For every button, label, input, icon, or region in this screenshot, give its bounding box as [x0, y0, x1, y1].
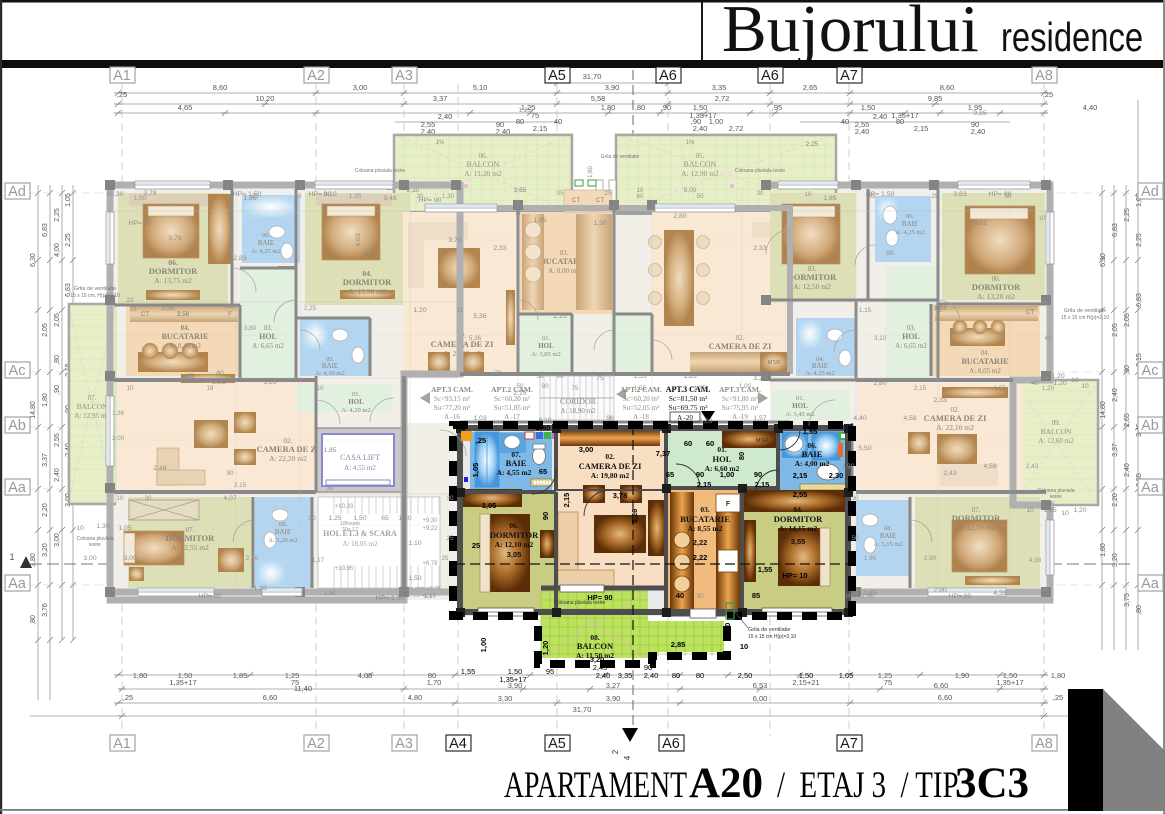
svg-text:06.: 06. [906, 213, 915, 220]
svg-text:70: 70 [494, 370, 502, 377]
svg-text:Sc=93,15 m²: Sc=93,15 m² [434, 395, 470, 403]
svg-text:BAIE: BAIE [322, 362, 338, 370]
svg-text:1,20: 1,20 [1073, 507, 1086, 514]
svg-text:3,63: 3,63 [933, 305, 946, 312]
svg-text:3,20: 3,20 [1112, 553, 1119, 567]
svg-text:4,80: 4,80 [408, 693, 423, 702]
svg-text:3,25: 3,25 [753, 375, 766, 382]
svg-text:50: 50 [696, 193, 704, 200]
svg-text:CT: CT [1026, 310, 1034, 316]
svg-text:1,90: 1,90 [955, 671, 970, 680]
svg-text:1,00: 1,00 [709, 117, 724, 126]
svg-text:DORMITOR: DORMITOR [149, 266, 198, 276]
svg-text:75: 75 [596, 375, 604, 382]
svg-text:1,00: 1,00 [479, 638, 488, 653]
svg-text:3,00: 3,00 [112, 435, 125, 442]
svg-text:80: 80 [696, 671, 704, 680]
svg-text:2,25: 2,25 [1124, 208, 1131, 222]
svg-text:4,40: 4,40 [853, 415, 866, 422]
svg-text:3,20: 3,20 [42, 543, 49, 557]
svg-text:1,57: 1,57 [753, 415, 766, 422]
svg-text:1%: 1% [436, 140, 445, 146]
svg-text:30: 30 [326, 485, 334, 492]
svg-text:1,85: 1,85 [324, 447, 337, 454]
svg-text:2,15: 2,15 [562, 493, 571, 508]
svg-text:08.: 08. [884, 525, 893, 532]
svg-text:2,60: 2,60 [536, 423, 551, 432]
svg-text:Su=52,05 m²: Su=52,05 m² [623, 404, 659, 412]
svg-text:22: 22 [126, 297, 134, 304]
svg-text:8,60: 8,60 [940, 83, 955, 92]
svg-text:A: 4,25 m2: A: 4,25 m2 [251, 248, 280, 255]
svg-text:Ac: Ac [9, 363, 26, 379]
svg-text:85: 85 [752, 591, 760, 600]
svg-text:6,00: 6,00 [753, 694, 768, 703]
svg-text:4,58: 4,58 [983, 463, 996, 470]
svg-text:1,50: 1,50 [408, 575, 421, 582]
svg-text:A -20: A -20 [677, 414, 693, 422]
svg-text:,90: ,90 [661, 103, 671, 112]
svg-text:4,07: 4,07 [223, 495, 236, 502]
svg-text:MSR: MSR [768, 360, 780, 366]
svg-text:10: 10 [740, 642, 748, 651]
svg-text:,25: ,25 [476, 436, 486, 445]
svg-text:1,00: 1,00 [720, 470, 735, 479]
svg-text:BALCON: BALCON [1041, 427, 1072, 436]
svg-text:Sc=91,80 m²: Sc=91,80 m² [722, 395, 758, 403]
svg-text:A6: A6 [659, 68, 677, 84]
svg-text:2,15: 2,15 [234, 482, 247, 489]
svg-text:+10,33: +10,33 [335, 504, 354, 510]
svg-text:/ ETAJ 3 / TIP: / ETAJ 3 / TIP [777, 765, 958, 806]
svg-text:03.: 03. [264, 324, 273, 332]
svg-text:2,33: 2,33 [493, 245, 506, 252]
svg-text:1,20: 1,20 [723, 623, 732, 638]
svg-text:HP= 90: HP= 90 [129, 220, 152, 227]
svg-text:A: 13,20 m2: A: 13,20 m2 [977, 292, 1015, 301]
svg-text:Grila de ventilatie: Grila de ventilatie [748, 627, 791, 633]
svg-text:18: 18 [206, 385, 214, 392]
svg-text:80: 80 [896, 117, 904, 126]
svg-text:1,10: 1,10 [408, 540, 421, 547]
svg-text:3,35: 3,35 [712, 83, 727, 92]
svg-text:1,50: 1,50 [861, 103, 876, 112]
svg-text:06.: 06. [262, 232, 271, 239]
svg-text:2,15: 2,15 [553, 313, 566, 320]
svg-text:APT.3 CAM.: APT.3 CAM. [431, 385, 473, 394]
svg-text:HOL: HOL [259, 332, 277, 341]
svg-text:25: 25 [441, 555, 449, 562]
svg-text:1,25: 1,25 [518, 107, 531, 114]
svg-text:40: 40 [841, 117, 849, 126]
svg-text:01.: 01. [542, 335, 551, 342]
svg-text:Su=75,95 m²: Su=75,95 m² [722, 404, 758, 412]
svg-text:A: 13,90 m2: A: 13,90 m2 [348, 287, 386, 296]
svg-text:50: 50 [851, 535, 859, 542]
svg-text:3,00: 3,00 [579, 445, 594, 454]
svg-text:Ac: Ac [1142, 363, 1159, 379]
svg-text:5,26: 5,26 [630, 509, 639, 524]
svg-text:1,35+17: 1,35+17 [996, 678, 1023, 687]
svg-text:1,30: 1,30 [442, 193, 455, 200]
svg-text:95: 95 [886, 250, 894, 257]
svg-text:1,30: 1,30 [96, 523, 109, 530]
svg-text:BALCON: BALCON [577, 641, 614, 651]
svg-text:25: 25 [294, 193, 302, 200]
svg-text:Grila de ventilatie: Grila de ventilatie [74, 286, 117, 292]
svg-text:75: 75 [884, 678, 892, 687]
svg-text:1,55: 1,55 [633, 373, 646, 380]
svg-text:30: 30 [696, 593, 704, 600]
svg-text:A6: A6 [662, 736, 680, 752]
svg-text:,80: ,80 [30, 615, 37, 625]
svg-text:03.: 03. [560, 249, 569, 257]
svg-text:60: 60 [684, 439, 692, 448]
svg-text:6,83: 6,83 [1136, 293, 1143, 307]
svg-text:3,05: 3,05 [507, 550, 522, 559]
svg-text:1,36: 1,36 [112, 410, 125, 417]
svg-text:1,05: 1,05 [65, 193, 72, 207]
svg-text:10: 10 [1061, 510, 1069, 517]
svg-text:1,70: 1,70 [427, 678, 442, 687]
svg-text:31,70: 31,70 [583, 72, 602, 81]
svg-text:A: 4,55 m2: A: 4,55 m2 [344, 464, 376, 472]
svg-text:80: 80 [516, 117, 524, 126]
svg-text:3,37: 3,37 [1112, 443, 1119, 457]
svg-text:07.: 07. [88, 394, 97, 402]
svg-text:A: 18,05 m2: A: 18,05 m2 [342, 540, 378, 548]
svg-text:HOL: HOL [792, 402, 808, 410]
svg-text:03.: 03. [700, 505, 710, 514]
svg-text:3,00: 3,00 [83, 555, 96, 562]
svg-text:05.: 05. [696, 152, 705, 160]
svg-text:1,55: 1,55 [758, 565, 773, 574]
svg-text:2,40: 2,40 [54, 468, 61, 482]
svg-text:80: 80 [672, 671, 680, 680]
svg-text:2,80: 2,80 [873, 380, 886, 387]
svg-text:2,05: 2,05 [1124, 313, 1131, 327]
svg-text:50: 50 [516, 383, 524, 390]
svg-text:2,72: 2,72 [729, 124, 744, 133]
svg-text:4,58: 4,58 [903, 415, 916, 422]
svg-text:3,35: 3,35 [618, 671, 633, 680]
svg-text:A: 5,15 m2: A: 5,15 m2 [873, 541, 902, 548]
svg-text:2,65: 2,65 [1124, 413, 1131, 427]
svg-text:A -18: A -18 [633, 413, 649, 421]
svg-text:A8: A8 [1035, 68, 1053, 84]
svg-text:3,00: 3,00 [54, 533, 61, 547]
svg-text:A: 8,40 m2: A: 8,40 m2 [169, 342, 201, 350]
svg-text:3,10: 3,10 [874, 335, 887, 342]
svg-text:1,05: 1,05 [471, 463, 480, 478]
svg-text:A: 12,95 m2: A: 12,95 m2 [74, 412, 110, 420]
svg-text:4: 4 [623, 755, 632, 760]
svg-text:Su=77,20 m²: Su=77,20 m² [434, 404, 470, 412]
svg-text:A: 18,90 m2: A: 18,90 m2 [560, 407, 596, 415]
svg-text:01.: 01. [352, 391, 361, 398]
svg-text:A8: A8 [1035, 736, 1053, 752]
svg-text:DORMITOR: DORMITOR [952, 513, 1001, 523]
svg-text:6,30: 6,30 [1100, 253, 1107, 267]
svg-text:65: 65 [381, 515, 389, 522]
svg-text:HOL: HOL [538, 342, 554, 350]
svg-text:30: 30 [308, 515, 316, 522]
svg-text:Grila de ventilatie: Grila de ventilatie [601, 154, 640, 160]
svg-text:A: 6,65 m2: A: 6,65 m2 [895, 342, 927, 350]
svg-text:2,15: 2,15 [513, 390, 526, 397]
svg-text:1,95: 1,95 [864, 555, 877, 562]
svg-text:A1: A1 [113, 736, 131, 752]
svg-text:DORMITOR: DORMITOR [166, 533, 215, 543]
svg-text:40: 40 [1031, 380, 1039, 387]
svg-text:04.: 04. [793, 505, 803, 514]
svg-text:10: 10 [126, 385, 134, 392]
svg-text:HOL: HOL [348, 398, 364, 406]
svg-text:2,85: 2,85 [671, 640, 686, 649]
svg-text:Aa: Aa [8, 576, 27, 592]
svg-text:APT.2 CAM.: APT.2 CAM. [491, 385, 533, 394]
svg-text:1,20: 1,20 [413, 307, 426, 314]
svg-text:Aa: Aa [8, 480, 27, 496]
svg-text:4,40: 4,40 [1083, 103, 1098, 112]
svg-text:,25: ,25 [1053, 693, 1063, 702]
svg-text:50: 50 [536, 373, 544, 380]
svg-text:residence: residence [1001, 13, 1143, 59]
svg-text:2: 2 [611, 749, 620, 754]
svg-text:11,40: 11,40 [294, 684, 312, 693]
svg-text:25: 25 [604, 190, 612, 197]
svg-text:30: 30 [416, 193, 424, 200]
svg-text:09.: 09. [1052, 419, 1061, 427]
svg-text:4,00: 4,00 [54, 243, 61, 257]
svg-text:HP= 10: HP= 10 [782, 571, 807, 580]
svg-text:1,55: 1,55 [994, 385, 1007, 392]
svg-text:3,76: 3,76 [42, 603, 49, 617]
svg-text:5,58: 5,58 [591, 94, 606, 103]
svg-text:A7: A7 [840, 68, 858, 84]
svg-text:8,60: 8,60 [213, 83, 228, 92]
svg-text:1,85: 1,85 [823, 195, 836, 202]
svg-text:Bujorului: Bujorului [722, 0, 979, 66]
svg-text:4,38: 4,38 [1029, 557, 1042, 564]
svg-text:75: 75 [571, 385, 579, 392]
svg-text:1,30: 1,30 [593, 220, 606, 227]
svg-text:15 x 15 cm, H(p)=2,10: 15 x 15 cm, H(p)=2,10 [70, 293, 120, 299]
svg-text:30: 30 [446, 495, 454, 502]
svg-text:A1: A1 [113, 68, 131, 84]
svg-text:03.: 03. [907, 324, 916, 332]
svg-text:90: 90 [556, 373, 564, 380]
svg-text:,80: ,80 [1136, 605, 1143, 615]
svg-text:5,36: 5,36 [473, 313, 486, 320]
svg-text:3,65: 3,65 [514, 187, 527, 194]
svg-text:2,60: 2,60 [503, 421, 518, 430]
svg-text:1,15: 1,15 [224, 303, 237, 310]
svg-text:CAMERA DE ZI: CAMERA DE ZI [924, 413, 988, 423]
svg-text:1,35+17: 1,35+17 [169, 678, 196, 687]
svg-text:1,35: 1,35 [349, 193, 362, 200]
svg-text:A: 12,60 m2: A: 12,60 m2 [1038, 437, 1074, 445]
svg-text:40: 40 [1044, 335, 1052, 342]
svg-text:Grila de ventilatie: Grila de ventilatie [1064, 308, 1107, 314]
svg-text:10,30: 10,30 [106, 191, 123, 198]
svg-text:90: 90 [696, 470, 704, 479]
svg-text:A -16: A -16 [444, 413, 460, 421]
svg-text:HOL: HOL [713, 454, 732, 464]
svg-text:80: 80 [737, 452, 746, 460]
svg-text:,90: ,90 [54, 385, 61, 395]
svg-text:Sc=60,20 m²: Sc=60,20 m² [623, 395, 659, 403]
svg-text:A: 3,85 m2: A: 3,85 m2 [531, 351, 560, 358]
svg-text:1,05: 1,05 [118, 525, 131, 532]
svg-text:BUCATARIE: BUCATARIE [162, 332, 209, 341]
svg-text:+9,22: +9,22 [422, 526, 438, 532]
svg-text:2,30: 2,30 [829, 471, 844, 480]
svg-text:MSR: MSR [756, 438, 768, 444]
svg-text:14,80: 14,80 [1100, 401, 1107, 419]
svg-text:1,00: 1,00 [739, 383, 752, 390]
svg-text:HP= 90: HP= 90 [199, 593, 222, 600]
svg-text:APARTAMENT: APARTAMENT [504, 765, 687, 806]
svg-text:A3: A3 [395, 68, 413, 84]
svg-text:4,03: 4,03 [363, 250, 376, 257]
svg-text:A: 22,10 m2: A: 22,10 m2 [936, 423, 974, 432]
svg-text:Coloana pluviala iesire: Coloana pluviala iesire [355, 168, 406, 174]
svg-text:1,05: 1,05 [482, 501, 497, 510]
svg-text:08.: 08. [279, 521, 288, 528]
svg-text:04.: 04. [181, 324, 190, 332]
svg-text:A: 12,55 m2: A: 12,55 m2 [171, 543, 209, 552]
svg-text:04.: 04. [981, 349, 990, 357]
svg-text:40: 40 [554, 117, 562, 126]
svg-text:6,60: 6,60 [263, 693, 278, 702]
svg-text:1,80: 1,80 [601, 103, 616, 112]
svg-text:95: 95 [546, 667, 554, 676]
svg-text:2,05: 2,05 [54, 313, 61, 327]
svg-text:90: 90 [541, 512, 550, 520]
svg-text:3,00: 3,00 [123, 555, 136, 562]
svg-text:Su=51,85 m²: Su=51,85 m² [494, 404, 530, 412]
svg-text:2,55: 2,55 [793, 490, 808, 499]
svg-text:3,30: 3,30 [498, 694, 513, 703]
svg-text:1,25: 1,25 [328, 515, 341, 522]
svg-text:7,37: 7,37 [656, 449, 671, 458]
svg-text:3,48: 3,48 [383, 195, 396, 202]
svg-text:iesire: iesire [1050, 494, 1062, 500]
svg-text:HP= 1,50: HP= 1,50 [376, 595, 405, 602]
svg-text:2,15: 2,15 [914, 385, 927, 392]
svg-text:3,27: 3,27 [606, 681, 621, 690]
svg-text:05: 05 [556, 190, 564, 197]
svg-text:3,37: 3,37 [42, 453, 49, 467]
svg-text:22: 22 [129, 306, 137, 313]
svg-text:A2: A2 [307, 736, 325, 752]
svg-text:1,50: 1,50 [134, 195, 147, 202]
svg-text:2,22: 2,22 [693, 538, 708, 547]
svg-text:2,40: 2,40 [1112, 388, 1119, 402]
svg-text:1,80: 1,80 [42, 393, 49, 407]
svg-text:2,20: 2,20 [42, 503, 49, 517]
svg-text:4,65: 4,65 [178, 103, 193, 112]
svg-text:2,40: 2,40 [1124, 463, 1131, 477]
svg-text:1,50: 1,50 [353, 515, 366, 522]
svg-text:2,25: 2,25 [304, 305, 317, 312]
svg-text:3,75: 3,75 [1124, 593, 1131, 607]
svg-text:A3: A3 [395, 736, 413, 752]
svg-text:15 x 15 cm H(p)=2,10: 15 x 15 cm H(p)=2,10 [1061, 315, 1109, 321]
svg-text:CT: CT [572, 197, 581, 204]
svg-text:1,05: 1,05 [839, 671, 854, 680]
svg-text:2,25: 2,25 [1136, 233, 1143, 247]
svg-text:10: 10 [76, 525, 84, 532]
svg-text:2,15+21: 2,15+21 [792, 678, 819, 687]
svg-text:1,28: 1,28 [253, 585, 266, 592]
svg-text:6,83: 6,83 [1112, 223, 1119, 237]
svg-text:02.: 02. [605, 452, 615, 461]
svg-text:1,60: 1,60 [588, 166, 594, 178]
svg-text:9,85: 9,85 [973, 110, 986, 117]
svg-text:2,40: 2,40 [596, 671, 611, 680]
svg-text:1,85: 1,85 [683, 373, 696, 380]
svg-text:HOL: HOL [902, 332, 920, 341]
svg-text:2,65: 2,65 [803, 83, 818, 92]
svg-text:3,70: 3,70 [448, 237, 461, 244]
svg-text:1,10: 1,10 [398, 515, 411, 522]
svg-text:01.: 01. [796, 395, 805, 402]
svg-text:25: 25 [472, 541, 480, 550]
svg-text:2,00: 2,00 [246, 555, 259, 562]
svg-text:4,38: 4,38 [993, 590, 1006, 597]
svg-text:BAIE: BAIE [812, 362, 828, 370]
svg-text:DORMITOR: DORMITOR [788, 272, 837, 282]
svg-text:2,15: 2,15 [914, 124, 929, 133]
svg-text:40: 40 [676, 591, 684, 600]
svg-text:1,05: 1,05 [1043, 507, 1056, 514]
svg-text:2,25: 2,25 [65, 233, 72, 247]
svg-text:25: 25 [446, 535, 454, 542]
svg-text:2,25: 2,25 [806, 141, 819, 148]
svg-text:2,43: 2,43 [1026, 463, 1039, 470]
svg-text:2,40: 2,40 [971, 127, 986, 136]
svg-text:2,40: 2,40 [873, 112, 888, 121]
svg-text:BUCATARIE: BUCATARIE [962, 357, 1009, 366]
svg-text:iesire: iesire [89, 542, 101, 548]
svg-text:Coloana pluviala iesire: Coloana pluviala iesire [555, 600, 606, 606]
svg-text:2,55: 2,55 [54, 433, 61, 447]
svg-text:95: 95 [186, 373, 194, 380]
svg-text:75: 75 [531, 111, 539, 120]
svg-text:30: 30 [851, 495, 859, 502]
svg-text:90: 90 [541, 383, 549, 390]
svg-text:10: 10 [116, 495, 124, 502]
svg-text:1,85: 1,85 [694, 385, 707, 392]
svg-text:6,60: 6,60 [934, 681, 949, 690]
svg-text:5,36: 5,36 [469, 335, 482, 342]
svg-text:2,40: 2,40 [644, 671, 659, 680]
svg-text:BALCON: BALCON [684, 160, 717, 169]
svg-text:3C3: 3C3 [955, 760, 1029, 807]
svg-text:14,80: 14,80 [30, 401, 37, 419]
svg-text:Aa: Aa [1141, 480, 1160, 496]
svg-text:A: 4,55 m2: A: 4,55 m2 [497, 468, 532, 477]
svg-text:2,22: 2,22 [693, 553, 708, 562]
svg-text:DORMITOR: DORMITOR [490, 530, 539, 540]
svg-text:A -17: A -17 [504, 413, 520, 421]
svg-text:A: 4,10 m2: A: 4,10 m2 [315, 370, 344, 377]
svg-text:10: 10 [1081, 383, 1089, 390]
svg-text:2,33: 2,33 [753, 245, 766, 252]
svg-text:A: 4,20 m2: A: 4,20 m2 [341, 407, 370, 414]
